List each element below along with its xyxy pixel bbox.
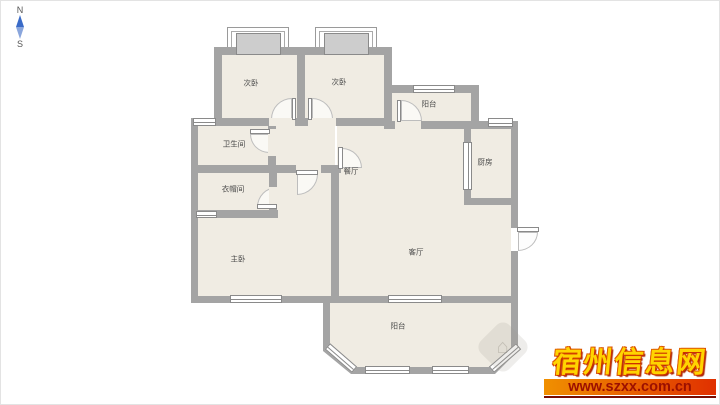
compass-south-label: S bbox=[9, 39, 31, 49]
compass: N S bbox=[9, 5, 31, 49]
door-leaf-bedroom-left bbox=[292, 98, 296, 120]
floorplan-page: N S bbox=[0, 0, 720, 405]
window-balcony-top bbox=[413, 85, 455, 93]
wall-exterior-right bbox=[511, 121, 518, 303]
window-kitchen-north bbox=[488, 118, 513, 127]
compass-needle-south-icon bbox=[16, 27, 24, 39]
room-label-cloakroom: 衣帽间 bbox=[222, 184, 245, 195]
room-label-living: 客厅 bbox=[409, 247, 424, 258]
bay-window-right-sill bbox=[324, 33, 369, 55]
bay-window-left-sill bbox=[236, 33, 281, 55]
wall-bedrooms-left bbox=[214, 47, 222, 126]
wall-bedrooms-bottom bbox=[214, 118, 391, 126]
room-label-bedroom-right: 次卧 bbox=[332, 77, 347, 88]
room-label-bedroom-left: 次卧 bbox=[244, 78, 259, 89]
floor-master-bedroom bbox=[197, 212, 335, 299]
compass-north-label: N bbox=[9, 5, 31, 15]
watermark-url: www.szxx.com.cn bbox=[544, 379, 716, 395]
window-cloakroom-master bbox=[196, 211, 217, 218]
door-leaf-cloakroom bbox=[257, 204, 277, 209]
room-label-master: 主卧 bbox=[231, 254, 246, 265]
room-label-balcony-bottom: 阳台 bbox=[391, 321, 406, 332]
door-leaf-bathroom bbox=[250, 129, 270, 134]
balcony-bottom-floor bbox=[330, 303, 511, 367]
door-leaf-entrance bbox=[517, 227, 539, 232]
window-balcony-bottom-1 bbox=[365, 366, 410, 374]
floor-corridor bbox=[269, 125, 335, 168]
wall-living-left bbox=[331, 166, 339, 303]
door-leaf-master-corridor bbox=[296, 170, 318, 175]
watermark-site-name: 宿州信息网 bbox=[542, 348, 717, 378]
sliding-door-kitchen bbox=[463, 142, 472, 190]
door-arc-entrance bbox=[518, 232, 538, 251]
window-living-balcony bbox=[388, 295, 442, 303]
door-leaf-dining bbox=[338, 147, 343, 169]
door-leaf-balcony-top bbox=[397, 100, 401, 122]
room-label-balcony-top: 阳台 bbox=[422, 99, 437, 110]
wall-bedroom-divider bbox=[297, 55, 305, 125]
door-gap-balcony-top bbox=[395, 121, 421, 129]
window-bathroom-north bbox=[193, 118, 216, 126]
floor-living-dining bbox=[337, 125, 513, 299]
site-watermark: 宿州信息网 www.szxx.com.cn bbox=[544, 348, 716, 398]
room-label-dining: 餐厅 bbox=[344, 166, 359, 177]
room-label-kitchen: 厨房 bbox=[478, 157, 493, 168]
watermark-underline bbox=[544, 396, 716, 398]
compass-needle-north-icon bbox=[16, 15, 24, 27]
window-balcony-bottom-2 bbox=[432, 366, 469, 374]
door-gap-bedroom-right bbox=[308, 118, 336, 126]
room-label-bathroom: 卫生间 bbox=[223, 139, 246, 150]
window-master-south bbox=[230, 295, 282, 303]
door-leaf-bedroom-right bbox=[308, 98, 312, 120]
wall-kitchen-bottom bbox=[464, 198, 518, 205]
